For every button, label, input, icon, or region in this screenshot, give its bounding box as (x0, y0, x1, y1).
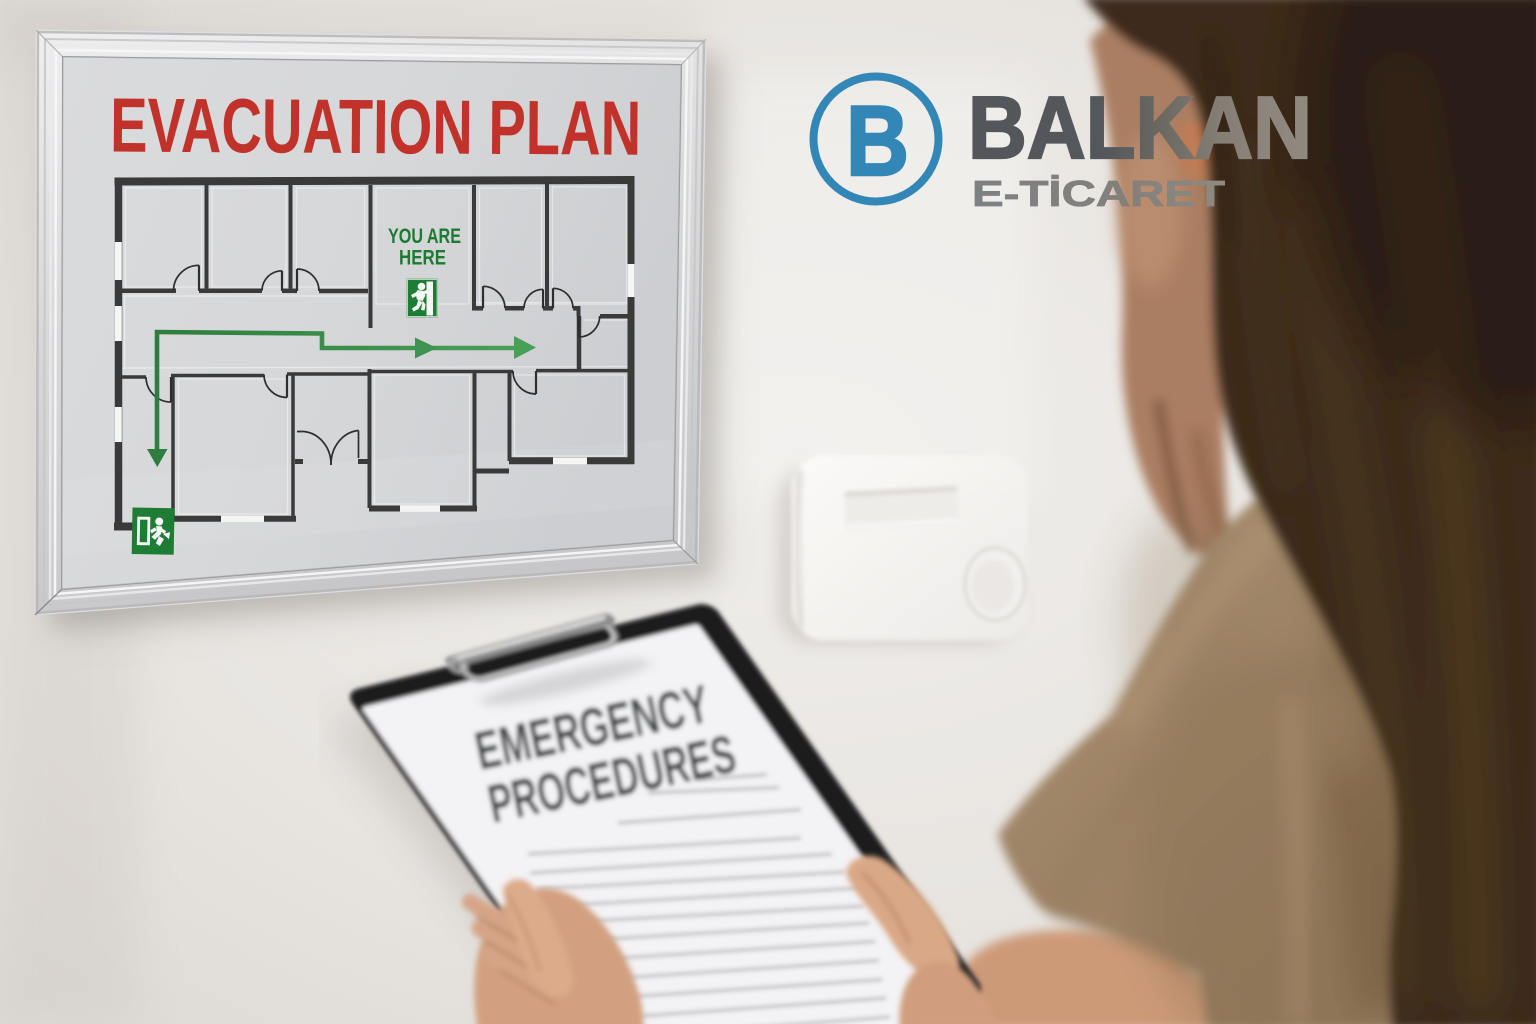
svg-text:E-TİCARET: E-TİCARET (972, 173, 1225, 214)
svg-text:EVACUATION PLAN: EVACUATION PLAN (110, 83, 642, 172)
svg-text:HERE: HERE (399, 247, 446, 270)
svg-text:BALKAN: BALKAN (968, 78, 1312, 177)
svg-text:B: B (846, 85, 909, 196)
svg-text:YOU ARE: YOU ARE (388, 225, 461, 248)
